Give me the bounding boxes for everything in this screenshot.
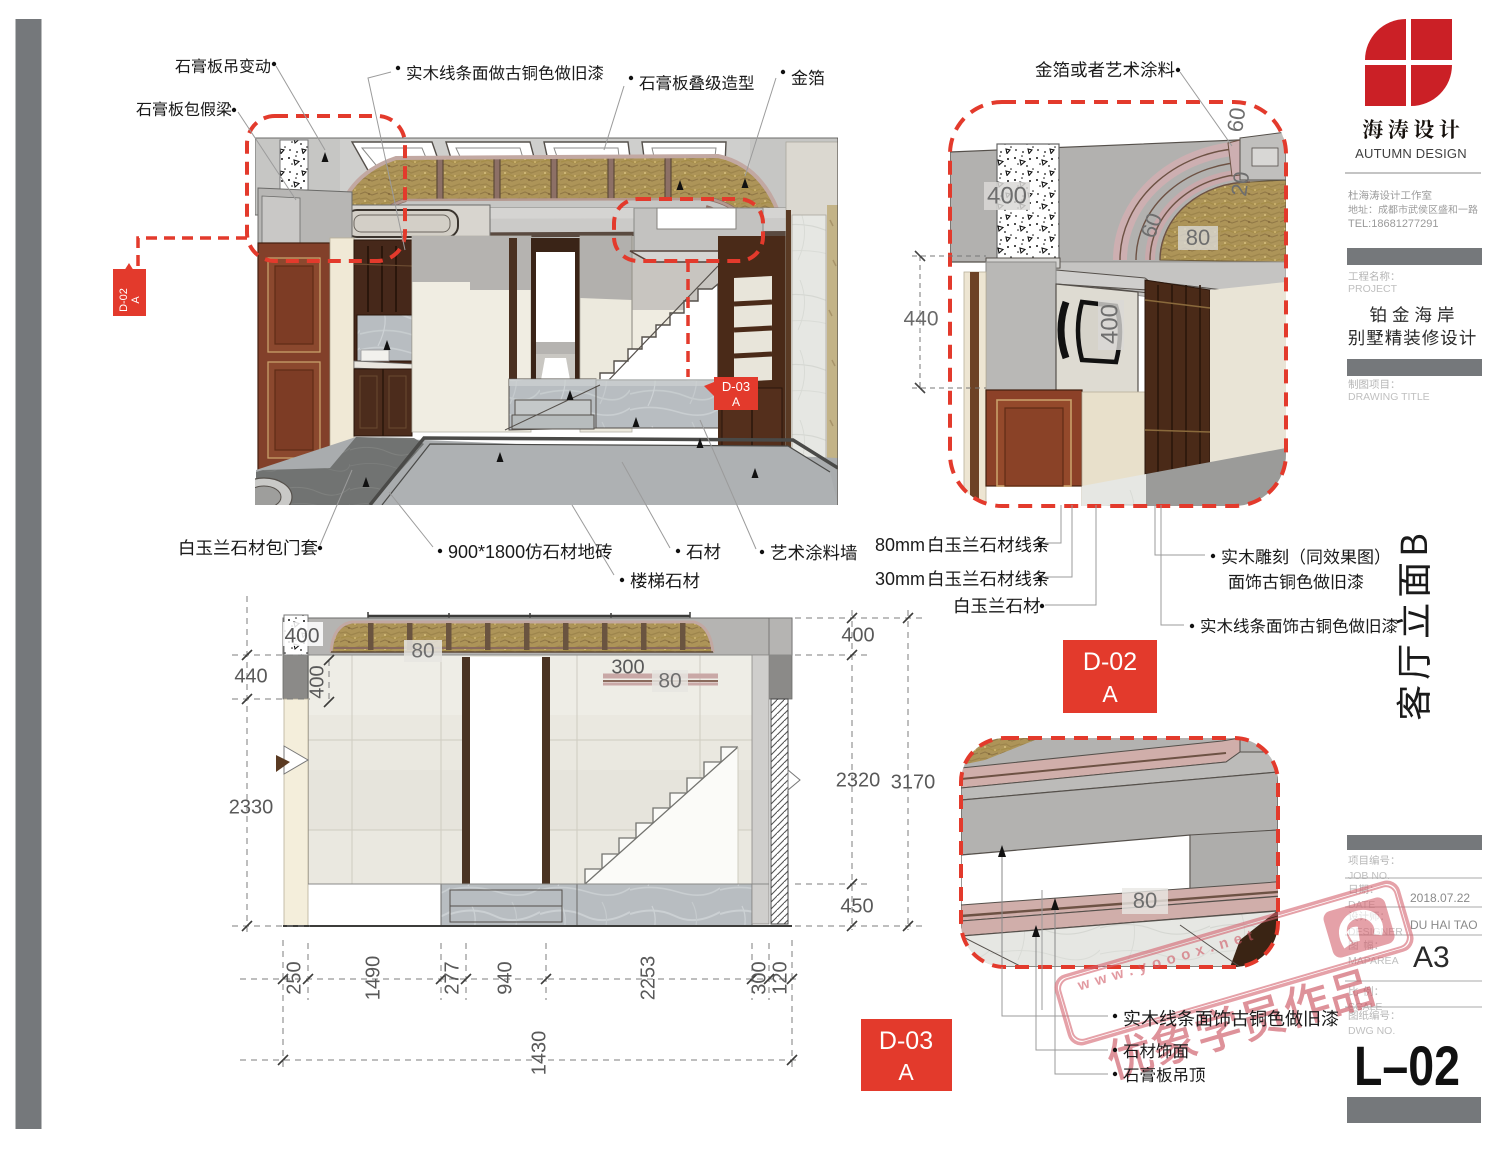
svg-text:450: 450 [840,895,873,917]
svg-text:1430: 1430 [528,1031,550,1076]
svg-text:JOB NO.: JOB NO. [1348,870,1390,882]
svg-text:60: 60 [1222,106,1250,134]
svg-text:DU HAI TAO: DU HAI TAO [1410,918,1478,932]
svg-text:400: 400 [1096,304,1123,344]
svg-text:1490: 1490 [362,956,384,1001]
svg-text:900*1800: 900*1800 [448,542,525,562]
svg-text:D-02: D-02 [1083,648,1137,676]
svg-text:2330: 2330 [229,796,274,818]
svg-text:400: 400 [841,624,874,646]
svg-text:20: 20 [1226,170,1254,198]
svg-text:300: 300 [748,961,770,994]
svg-text:400: 400 [284,625,319,648]
svg-text:DRAWING TITLE: DRAWING TITLE [1348,391,1430,403]
svg-text:2320: 2320 [836,769,881,791]
svg-text:2253: 2253 [637,956,659,1001]
svg-text:A: A [732,395,740,409]
svg-text:80: 80 [1186,225,1210,250]
svg-text:80: 80 [1133,888,1157,913]
svg-text:400: 400 [306,665,328,698]
svg-text:3170: 3170 [891,771,936,793]
svg-text:277: 277 [441,961,463,994]
svg-text:TEL:18681277291: TEL:18681277291 [1348,218,1439,230]
svg-text:A: A [130,296,142,304]
svg-text:400: 400 [987,182,1027,209]
svg-text:D-02: D-02 [118,288,130,312]
svg-text:2018.07.22: 2018.07.22 [1410,891,1470,905]
svg-text:D-03: D-03 [879,1027,933,1055]
svg-text:A: A [1102,681,1118,707]
svg-text:AUTUMN DESIGN: AUTUMN DESIGN [1355,146,1467,161]
svg-text:PROJECT: PROJECT [1348,283,1398,295]
svg-text:440: 440 [234,665,267,687]
svg-text:80mm: 80mm [875,535,925,555]
svg-text:L–02: L–02 [1354,1034,1460,1097]
svg-text:250: 250 [283,961,305,994]
svg-text:30mm: 30mm [875,569,925,589]
svg-text:A: A [898,1059,914,1085]
svg-text:940: 940 [494,961,516,994]
svg-text:D-03: D-03 [722,379,750,394]
svg-text:120: 120 [769,961,791,994]
svg-text:80: 80 [658,670,681,693]
svg-text:300: 300 [611,656,644,678]
svg-text:80: 80 [411,640,434,663]
svg-text:A3: A3 [1413,941,1450,974]
